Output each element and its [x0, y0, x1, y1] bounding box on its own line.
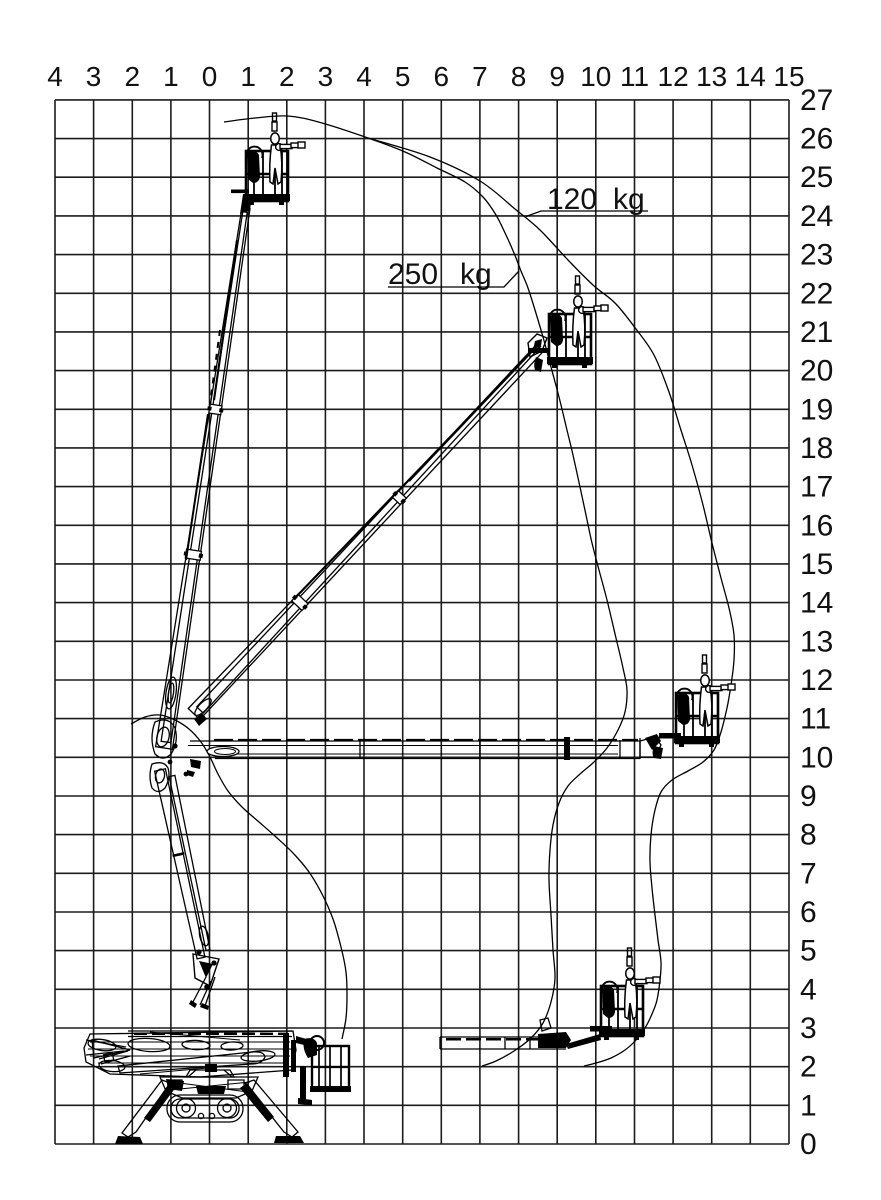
svg-text:3: 3 [800, 1012, 817, 1045]
svg-text:12: 12 [658, 61, 689, 92]
svg-text:10: 10 [580, 61, 611, 92]
svg-text:2: 2 [125, 61, 141, 92]
svg-text:27: 27 [800, 84, 833, 117]
svg-text:250: 250 [388, 258, 438, 291]
svg-text:8: 8 [800, 819, 817, 852]
svg-text:6: 6 [800, 896, 817, 929]
svg-text:24: 24 [800, 200, 833, 233]
svg-text:14: 14 [800, 587, 833, 620]
svg-text:13: 13 [800, 625, 833, 658]
svg-text:3: 3 [318, 61, 334, 92]
svg-text:23: 23 [800, 239, 833, 272]
svg-text:12: 12 [800, 664, 833, 697]
svg-text:20: 20 [800, 355, 833, 388]
svg-text:18: 18 [800, 432, 833, 465]
svg-text:0: 0 [202, 61, 218, 92]
svg-text:17: 17 [800, 471, 833, 504]
svg-text:5: 5 [395, 61, 411, 92]
svg-text:kg: kg [460, 258, 492, 291]
svg-text:9: 9 [549, 61, 565, 92]
svg-text:6: 6 [434, 61, 450, 92]
svg-text:2: 2 [279, 61, 295, 92]
svg-text:4: 4 [356, 61, 372, 92]
svg-text:11: 11 [620, 61, 649, 92]
svg-text:19: 19 [800, 393, 833, 426]
svg-text:7: 7 [472, 61, 488, 92]
svg-text:1: 1 [800, 1089, 817, 1122]
svg-text:4: 4 [47, 61, 63, 92]
svg-text:2: 2 [800, 1051, 817, 1084]
svg-text:1: 1 [163, 61, 179, 92]
svg-text:8: 8 [511, 61, 527, 92]
svg-text:13: 13 [696, 61, 727, 92]
svg-text:16: 16 [800, 509, 833, 542]
svg-text:14: 14 [735, 61, 766, 92]
svg-text:9: 9 [800, 780, 817, 813]
svg-text:4: 4 [800, 973, 817, 1006]
svg-text:26: 26 [800, 123, 833, 156]
svg-text:21: 21 [800, 316, 833, 349]
svg-text:22: 22 [800, 277, 833, 310]
svg-text:3: 3 [86, 61, 102, 92]
svg-text:1: 1 [240, 61, 256, 92]
svg-text:5: 5 [800, 935, 817, 968]
svg-text:25: 25 [800, 161, 833, 194]
svg-text:11: 11 [800, 703, 831, 736]
svg-text:7: 7 [800, 857, 817, 890]
svg-text:0: 0 [800, 1128, 817, 1161]
svg-text:15: 15 [800, 548, 833, 581]
svg-text:10: 10 [800, 741, 833, 774]
